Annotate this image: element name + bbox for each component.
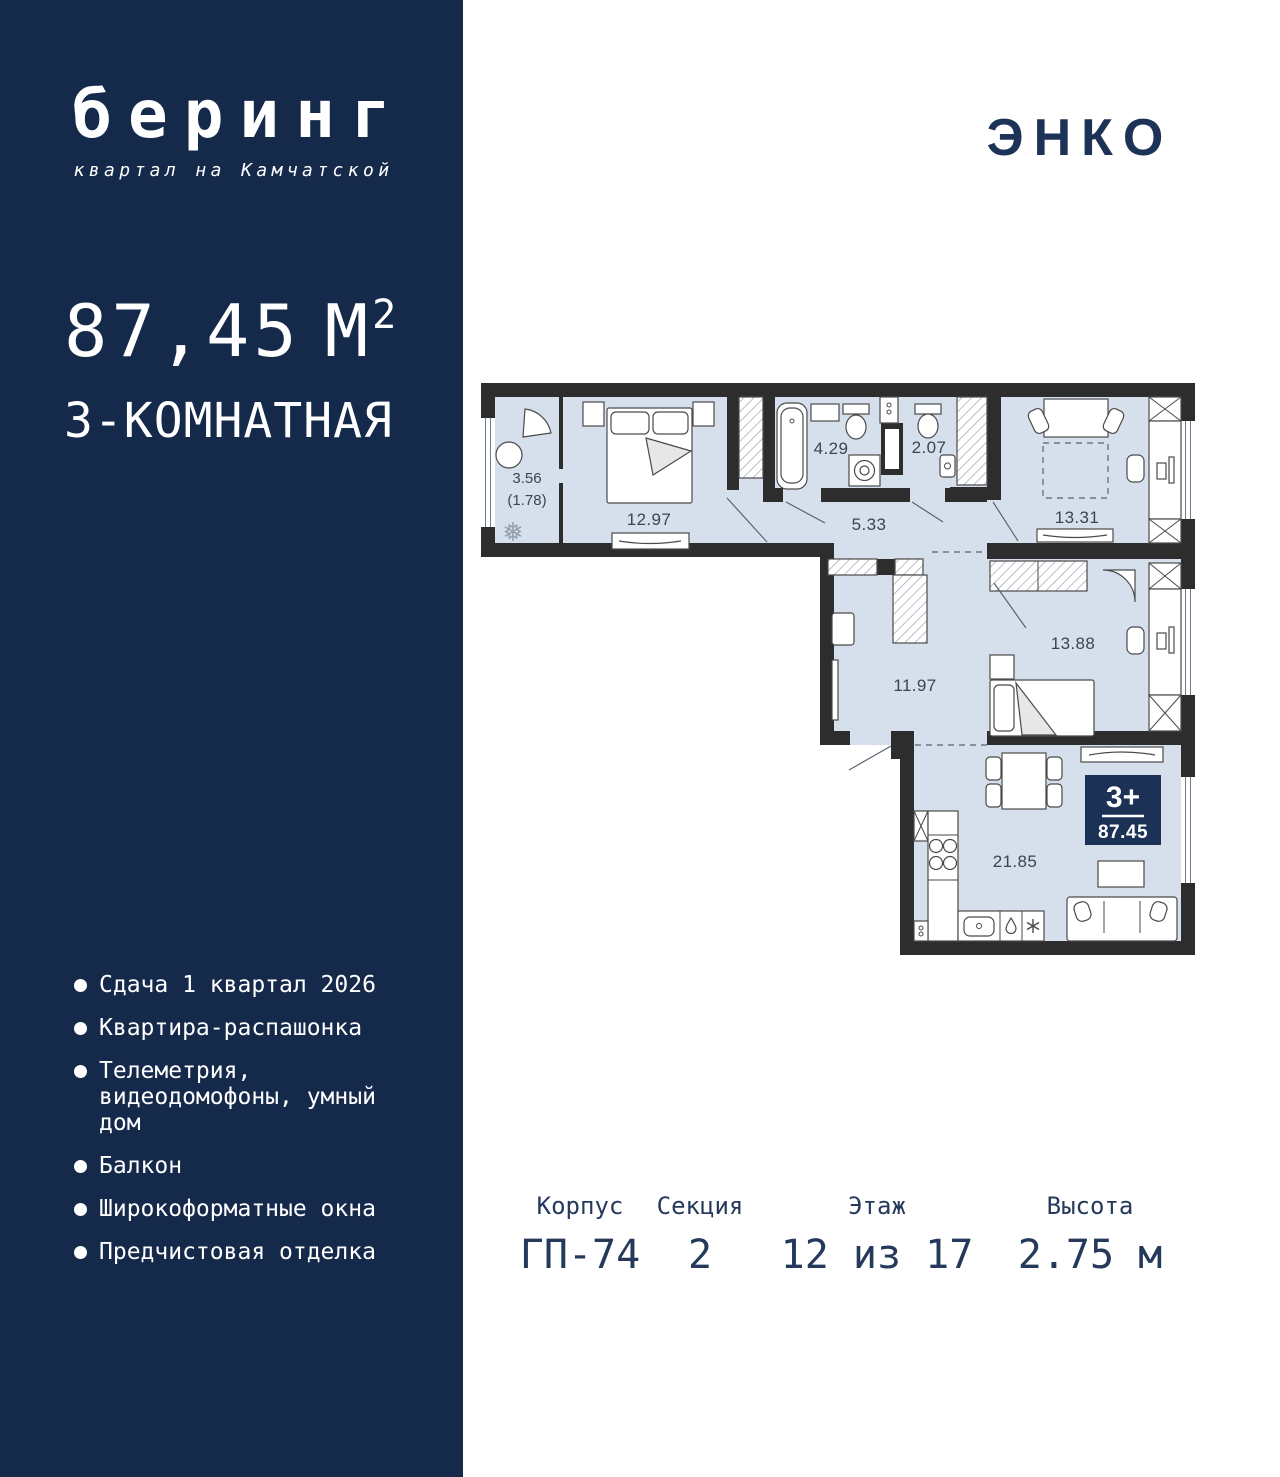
room-label-bedroom1: 12.97 [627, 510, 672, 529]
brand-logo-subtitle: квартал на Камчатской [0, 160, 463, 181]
room-label-kitchen: 21.85 [993, 852, 1038, 871]
list-item: Широкоформатные окна [74, 1196, 404, 1222]
area-sup: 2 [372, 292, 396, 338]
summary-korpus: Корпус ГП-74 [500, 1192, 660, 1278]
room-label-balcony: 3.56 [512, 470, 541, 487]
summary-value: ГП-74 [500, 1232, 660, 1278]
floor-plan-container: ❅ [481, 383, 1195, 955]
feature-text: Квартира-распашонка [99, 1015, 399, 1041]
room-label-bedroom2: 13.88 [1051, 634, 1096, 653]
feature-text: Балкон [99, 1153, 399, 1179]
bullet-icon [74, 1203, 87, 1216]
summary-label: Этаж [767, 1192, 987, 1220]
room-label-hall: 11.97 [893, 676, 936, 695]
area-unit: М [325, 289, 372, 373]
feature-text: Телеметрия, видеодомофоны, умный дом [99, 1058, 399, 1136]
snowflake-icon: ❅ [502, 518, 524, 548]
list-item: Квартира-распашонка [74, 1015, 404, 1041]
summary-row: Корпус ГП-74 Секция 2 Этаж 12 из 17 Высо… [463, 1192, 1280, 1302]
list-item: Телеметрия, видеодомофоны, умный дом [74, 1058, 404, 1136]
floor-plan: ❅ [481, 383, 1195, 955]
bullet-icon [74, 1160, 87, 1173]
feature-text: Широкоформатные окна [99, 1196, 399, 1222]
feature-list: Сдача 1 квартал 2026 Квартира-распашонка… [74, 972, 404, 1282]
summary-sekcia: Секция 2 [640, 1192, 760, 1278]
summary-value: 2 [640, 1232, 760, 1278]
brand-logo: беринг квартал на Камчатской [0, 82, 463, 181]
apartment-headline: 87,45М2 3-КОМНАТНАЯ [64, 292, 396, 449]
list-item: Сдача 1 квартал 2026 [74, 972, 404, 998]
flyer-page: беринг квартал на Камчатской 87,45М2 3-К… [0, 0, 1280, 1477]
room-label-bathroom: 4.29 [814, 439, 849, 458]
room-label-wc: 2.07 [912, 438, 947, 457]
summary-value: 12 из 17 [767, 1232, 987, 1278]
developer-logo: ЭНКО [952, 112, 1208, 164]
summary-vysota: Высота 2.75 м [970, 1192, 1210, 1278]
area-value: 87,45 [64, 289, 301, 373]
list-item: Предчистовая отделка [74, 1239, 404, 1265]
bullet-icon [74, 1065, 87, 1078]
room-label-living: 13.31 [1055, 508, 1100, 527]
bullet-icon [74, 979, 87, 992]
summary-label: Корпус [500, 1192, 660, 1220]
summary-label: Высота [970, 1192, 1210, 1220]
room-label-balcony-coeff: (1.78) [507, 492, 546, 509]
feature-text: Сдача 1 квартал 2026 [99, 972, 399, 998]
bullet-icon [74, 1022, 87, 1035]
brand-logo-title: беринг [0, 82, 463, 148]
summary-label: Секция [640, 1192, 760, 1220]
summary-etazh: Этаж 12 из 17 [767, 1192, 987, 1278]
apartment-badge: 3+ 87.45 [1085, 775, 1161, 845]
apartment-area: 87,45М2 [64, 292, 396, 371]
bullet-icon [74, 1246, 87, 1259]
list-item: Балкон [74, 1153, 404, 1179]
summary-value: 2.75 м [970, 1232, 1210, 1278]
rooms-title: 3-КОМНАТНАЯ [64, 393, 396, 449]
badge-rooms: 3+ [1106, 781, 1140, 814]
room-label-corridor: 5.33 [852, 515, 887, 534]
badge-area: 87.45 [1098, 822, 1148, 843]
feature-text: Предчистовая отделка [99, 1239, 399, 1265]
sidebar: беринг квартал на Камчатской 87,45М2 3-К… [0, 0, 463, 1477]
